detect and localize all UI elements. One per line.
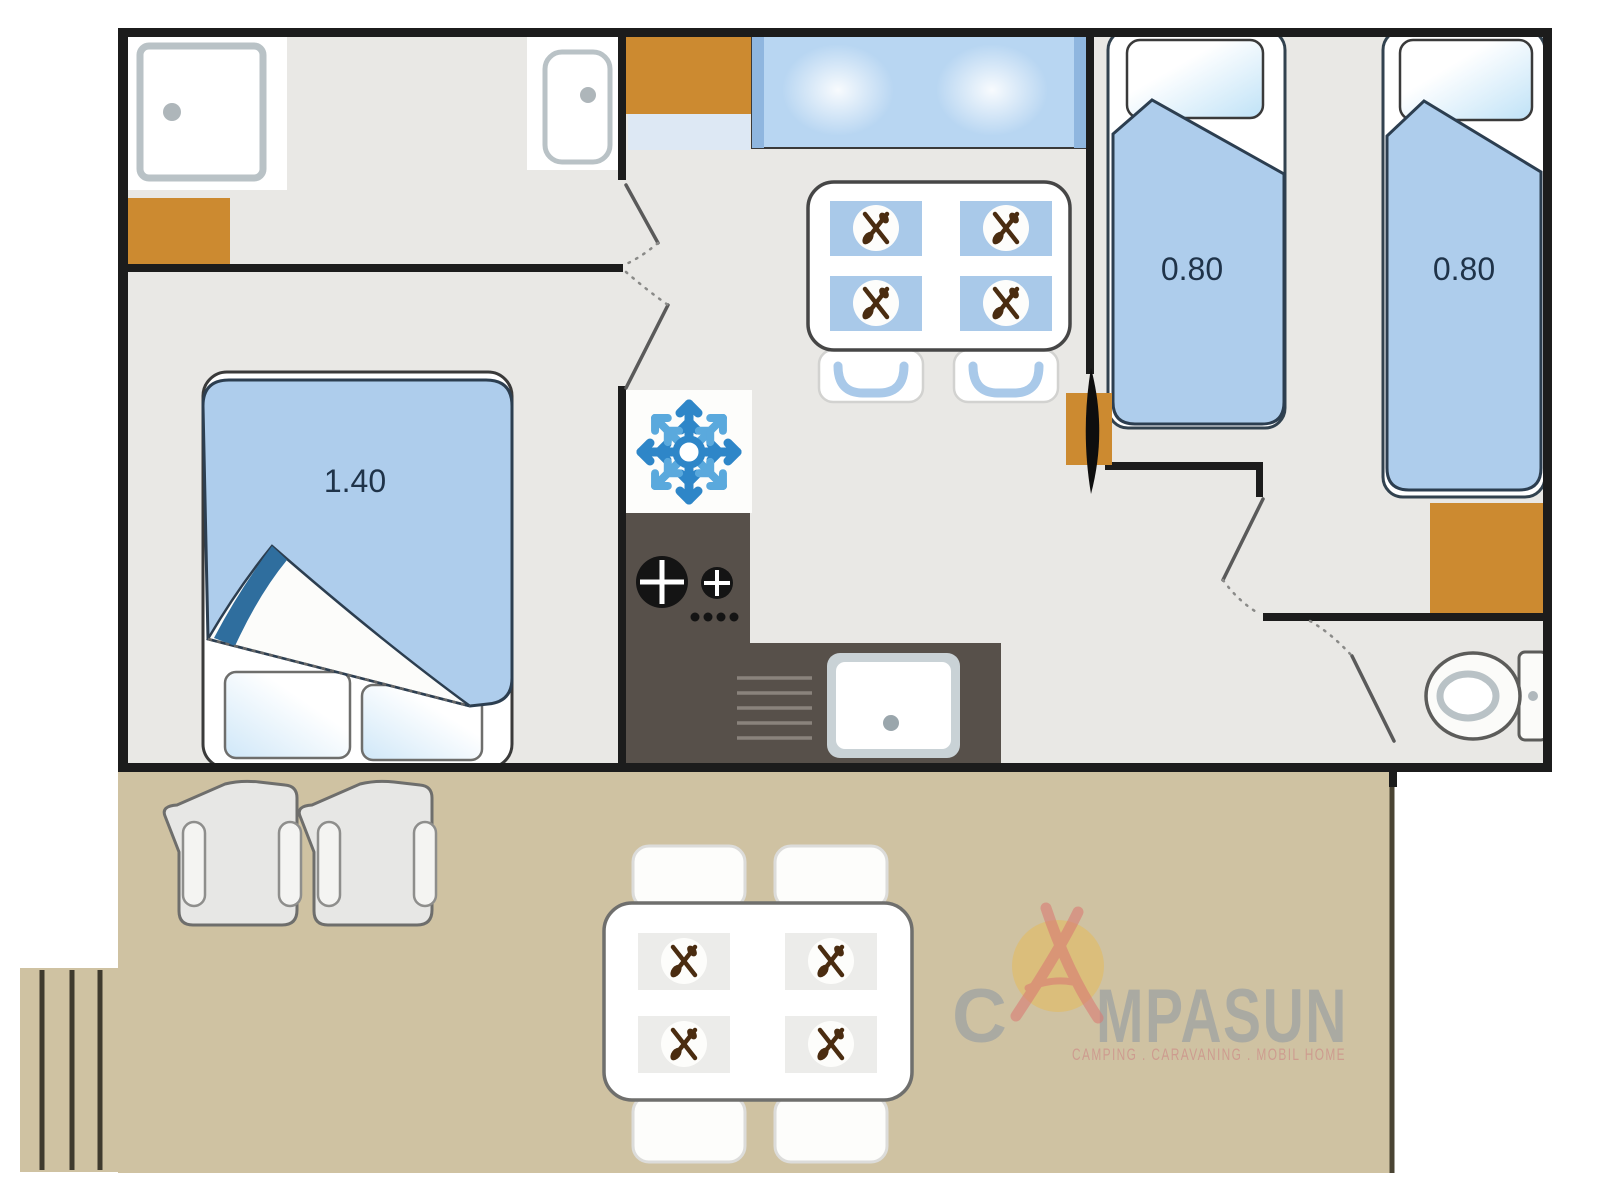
brand-letter-c: C [952, 974, 1009, 1059]
wall-bedroom-hall [1105, 462, 1263, 470]
crossed-cutlery-icon [983, 280, 1029, 326]
kitchen-shelf [628, 114, 750, 150]
wall-bathroom-bottom [127, 264, 623, 272]
wall-master-right [618, 386, 626, 763]
terrace: C MPASUN CAMPING . CARAVANING . MOBIL HO… [20, 772, 1393, 1173]
wall-tick-terrace [1389, 763, 1397, 787]
master-bedroom: 1.40 [203, 372, 512, 768]
terrace-lounge-chair-2 [299, 781, 436, 925]
drain-dot-icon [580, 87, 596, 103]
shower-tray [140, 46, 263, 178]
terrace-chair-bottom-right [775, 1096, 887, 1162]
drain-dot-icon [883, 715, 899, 731]
wc [1426, 652, 1547, 740]
kitchen-sink [827, 653, 960, 758]
snowflake-icon [641, 404, 737, 500]
crossed-cutlery-icon [983, 205, 1029, 251]
flush-dot-icon [1528, 691, 1538, 701]
crossed-cutlery-icon [853, 205, 899, 251]
svg-text:CAMPING . CARAVANING . MOBIL H: CAMPING . CARAVANING . MOBIL HOME [1072, 1045, 1346, 1064]
terrace-chair-top-left [633, 846, 745, 908]
brand-tagline: CAMPING . CARAVANING . MOBIL HOME [1072, 1045, 1346, 1064]
single-bed-right: 0.80 [1383, 30, 1545, 497]
wall-bathroom-right [618, 37, 626, 180]
single-bed-left: 0.80 [1108, 30, 1285, 428]
terrace-chair-bottom-left [633, 1096, 745, 1162]
window [752, 36, 1086, 148]
wall-living-bedroom [1086, 37, 1094, 374]
twin-bed-left-label: 0.80 [1161, 251, 1223, 287]
wall-bottom [118, 763, 1552, 772]
wall-wc-top [1263, 613, 1552, 621]
crossed-cutlery-icon [808, 938, 854, 984]
master-bed-label: 1.40 [324, 463, 386, 499]
dining-chair-left [819, 350, 923, 402]
double-bed: 1.40 [203, 372, 512, 768]
crossed-cutlery-icon [661, 938, 707, 984]
drain-dot-icon [163, 103, 181, 121]
dining-chair-right [954, 350, 1058, 402]
bathroom-cabinet [127, 198, 230, 266]
pillow [225, 672, 350, 758]
hallway [1430, 503, 1543, 615]
crossed-cutlery-icon [808, 1021, 854, 1067]
wall-right [1543, 28, 1552, 772]
toilet-bowl-inner [1440, 674, 1496, 718]
blanket [1387, 101, 1541, 490]
twin-bed-right-label: 0.80 [1433, 251, 1495, 287]
hallway-wardrobe [1430, 503, 1543, 615]
floorplan-image: C MPASUN CAMPING . CARAVANING . MOBIL HO… [0, 0, 1600, 1200]
floorplan-canvas: C MPASUN CAMPING . CARAVANING . MOBIL HO… [0, 0, 1600, 1200]
terrace-steps [20, 968, 118, 1172]
mobile-home: 1.40 0.80 0.80 [118, 28, 1552, 787]
door-jamb [1256, 462, 1263, 497]
wall-top [118, 28, 1552, 37]
svg-text:C: C [952, 974, 1009, 1059]
crossed-cutlery-icon [661, 1021, 707, 1067]
kitchen-cabinet-top [626, 36, 752, 114]
washbasin [545, 52, 610, 162]
terrace-lounge-chair-1 [164, 781, 301, 925]
wall-left [118, 28, 128, 772]
terrace-chair-top-right [775, 846, 887, 908]
crossed-cutlery-icon [853, 280, 899, 326]
